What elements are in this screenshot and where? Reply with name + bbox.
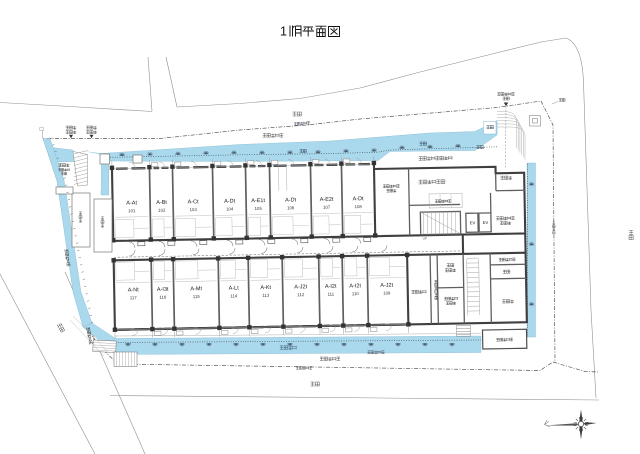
- svg-text:UP: UP: [423, 237, 428, 241]
- svg-text:101: 101: [128, 208, 136, 213]
- svg-text:105: 105: [255, 206, 263, 211]
- svg-text:A-Dt: A-Dt: [224, 199, 236, 205]
- svg-text:EV: EV: [470, 220, 476, 225]
- svg-text:A-At: A-At: [126, 200, 137, 206]
- svg-text:A-I2t: A-I2t: [325, 284, 337, 290]
- svg-text:A-E1t: A-E1t: [251, 198, 265, 204]
- svg-text:A-Dt: A-Dt: [285, 197, 297, 203]
- svg-text:A-I3t: A-I3t: [157, 287, 169, 293]
- svg-text:112: 112: [297, 292, 305, 297]
- svg-text:A-E2t: A-E2t: [320, 197, 334, 203]
- svg-text:A-J2t: A-J2t: [294, 284, 307, 290]
- svg-text:A-Lt: A-Lt: [229, 285, 240, 291]
- svg-text:A-Mt: A-Mt: [190, 286, 202, 292]
- svg-text:A-Ct: A-Ct: [188, 199, 200, 205]
- svg-text:114: 114: [230, 293, 238, 298]
- svg-text:A-Kt: A-Kt: [260, 285, 271, 291]
- svg-text:108: 108: [355, 204, 363, 209]
- svg-text:106: 106: [287, 205, 295, 210]
- svg-text:A-Bt: A-Bt: [156, 200, 167, 206]
- svg-text:111: 111: [327, 292, 334, 297]
- svg-text:A-Dt: A-Dt: [353, 196, 365, 202]
- svg-text:107: 107: [323, 205, 331, 210]
- svg-text:A-J2t: A-J2t: [380, 283, 393, 289]
- svg-text:104: 104: [226, 206, 234, 211]
- svg-text:116: 116: [159, 295, 167, 300]
- svg-text:109: 109: [383, 291, 391, 296]
- svg-text:117: 117: [130, 295, 138, 300]
- svg-text:A-Nt: A-Nt: [128, 287, 140, 293]
- svg-text:EV: EV: [483, 220, 489, 225]
- svg-text:A-I2t: A-I2t: [349, 283, 361, 289]
- svg-text:103: 103: [190, 207, 198, 212]
- svg-text:113: 113: [262, 293, 270, 298]
- svg-text:110: 110: [352, 291, 360, 296]
- svg-text:1: 1: [280, 24, 287, 39]
- svg-text:102: 102: [158, 208, 166, 213]
- svg-text:115: 115: [193, 294, 201, 299]
